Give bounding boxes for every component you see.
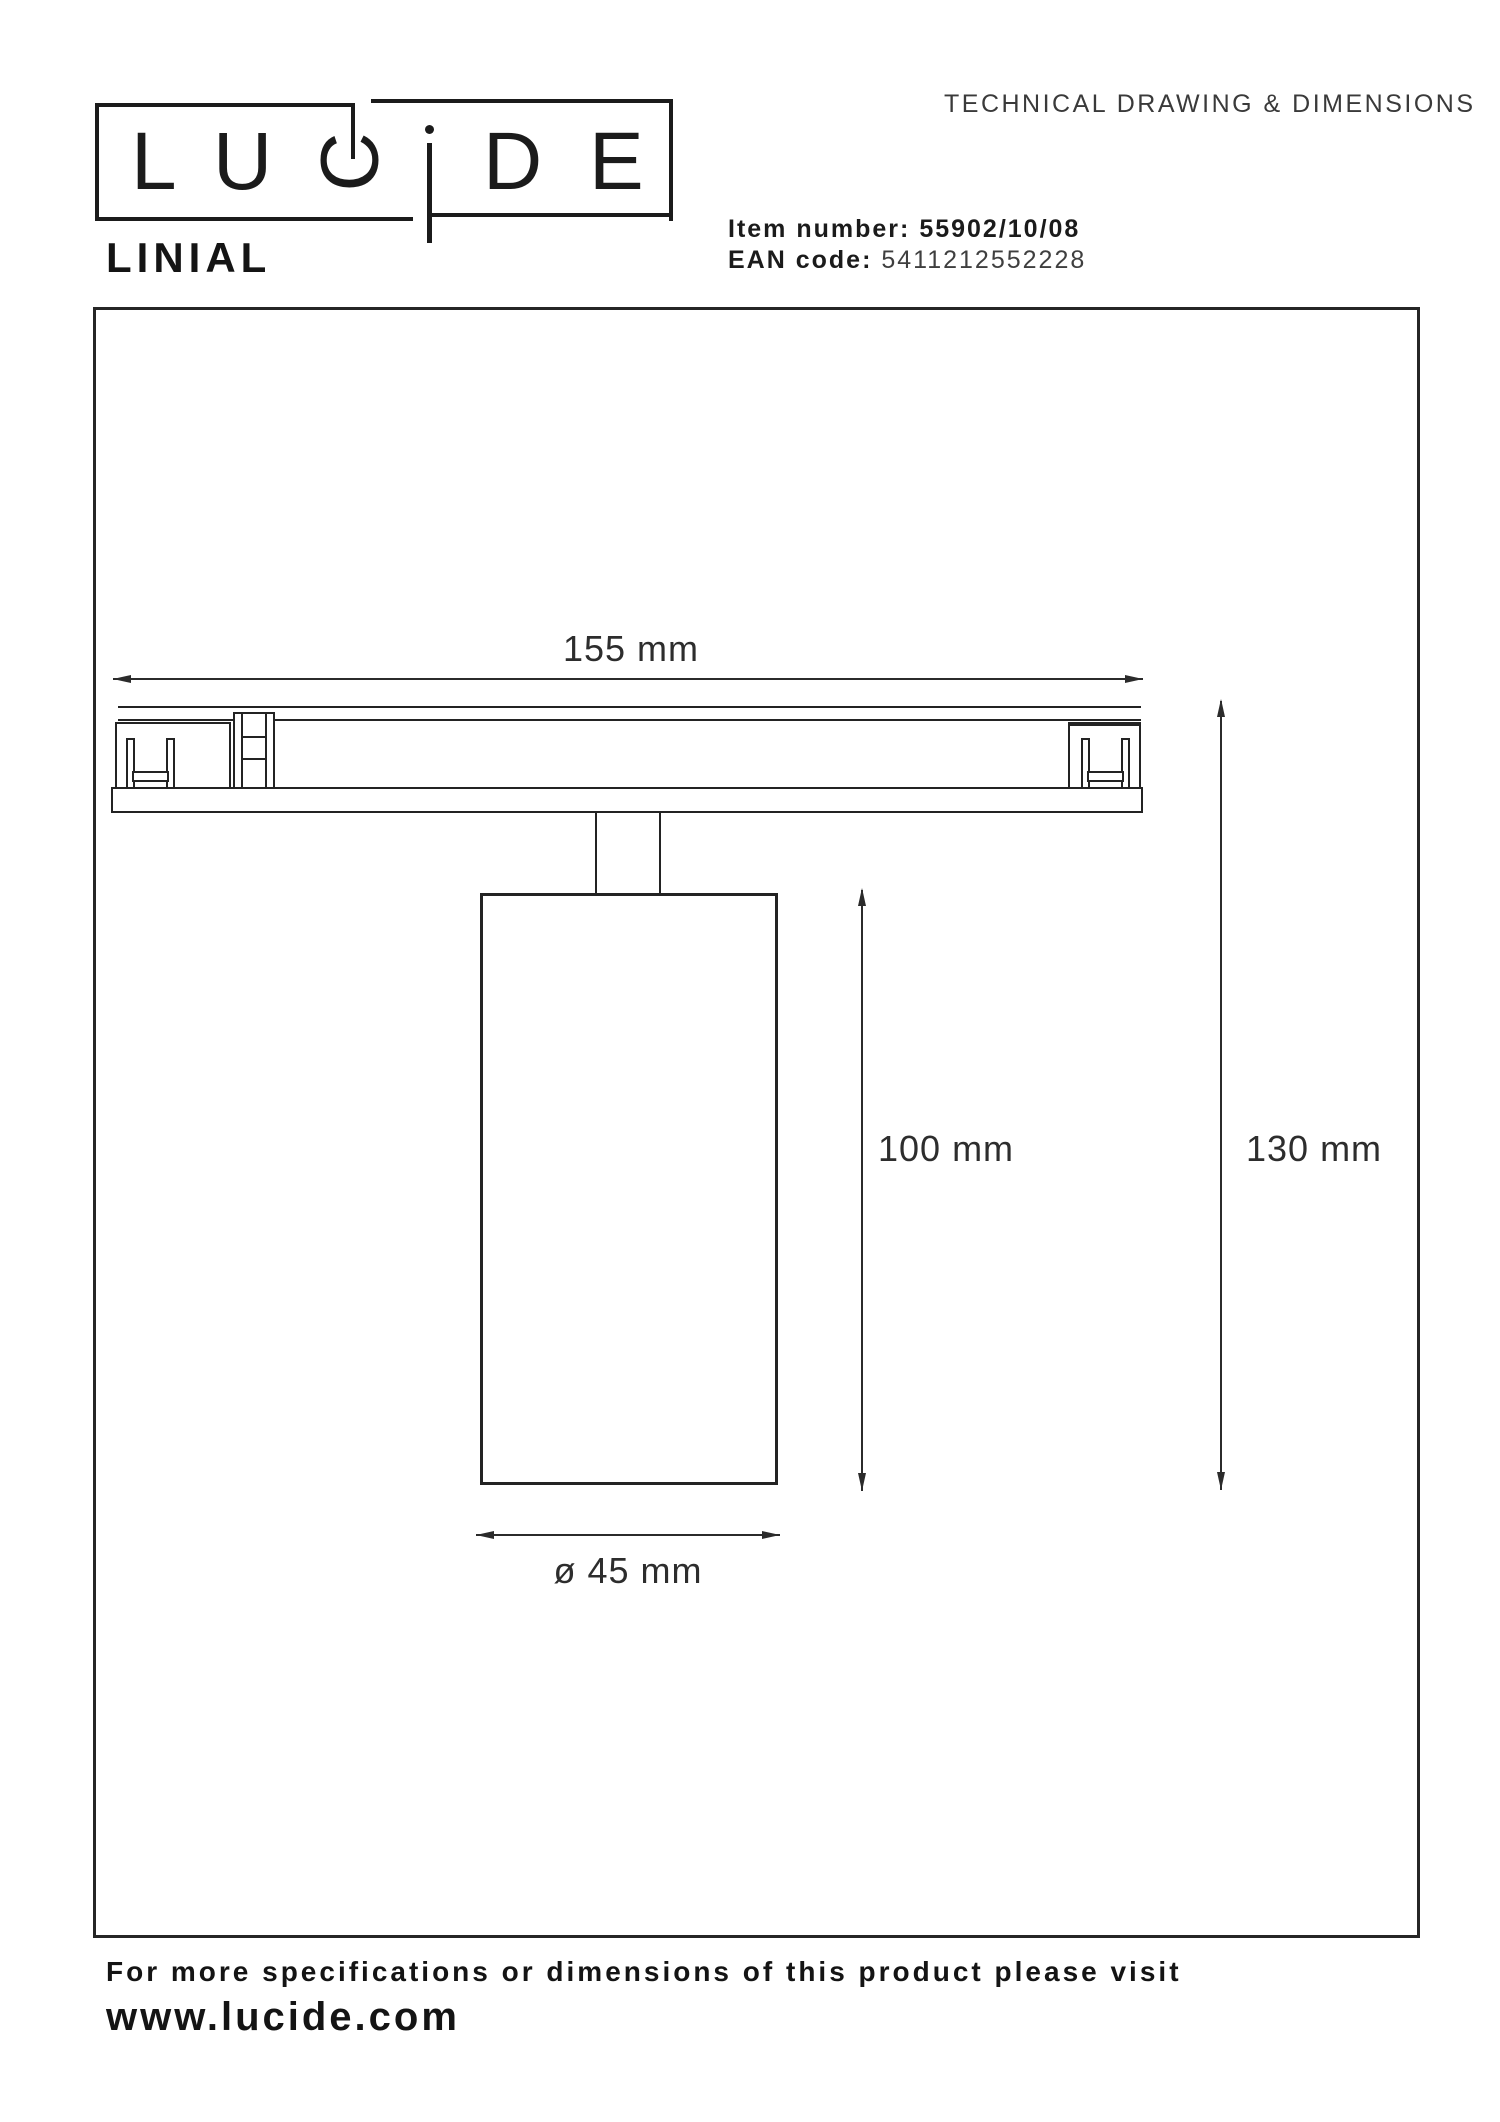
track-end-clip-right (1068, 722, 1141, 790)
logo-frame-bottom-left (95, 217, 413, 221)
item-number-label: Item number: (728, 215, 910, 243)
logo-letter: E (589, 109, 644, 215)
arrow-down-icon (1217, 1472, 1225, 1490)
track-end-clip-left (115, 722, 231, 790)
total-height-label: 130 mm (1246, 1128, 1382, 1170)
dim-line-track-width (113, 678, 1143, 680)
arrow-up-icon (858, 888, 866, 906)
arrow-right-icon (762, 1531, 780, 1539)
drawing-frame: 155 mm (93, 307, 1420, 1938)
spot-cylinder (480, 893, 778, 1485)
connector-divider (241, 736, 267, 738)
logo-frame-top-left (95, 103, 353, 107)
logo-frame-top-right (371, 99, 673, 103)
logo-letter-i-dot (425, 125, 434, 134)
connector-wall (241, 714, 243, 788)
diameter-label: ø 45 mm (476, 1550, 780, 1592)
track-width-label: 155 mm (481, 628, 781, 670)
ean-code-label: EAN code: (728, 246, 872, 274)
logo-letter-i-stem (427, 143, 432, 243)
dim-line-spot-height (861, 890, 863, 1491)
connector-wall (265, 714, 267, 788)
footer-website: www.lucide.com (106, 1995, 460, 2040)
document-title: TECHNICAL DRAWING & DIMENSIONS (944, 90, 1476, 119)
logo-letter: D (483, 109, 542, 215)
spot-stem (595, 811, 661, 896)
logo-frame-left (95, 103, 99, 221)
u-channel-left (126, 738, 175, 789)
arrow-down-icon (858, 1473, 866, 1491)
u-channel-base (132, 771, 169, 782)
dim-line-total-height (1220, 701, 1222, 1490)
spec-sheet-page: L U C D E TECHNICAL DRAWING & DIMENSIONS… (0, 0, 1500, 2122)
logo-letter: C (298, 132, 404, 191)
item-number-line: Item number: 55902/10/08 (728, 214, 1086, 245)
logo-frame-right (669, 99, 673, 221)
item-number-value: 55902/10/08 (919, 215, 1080, 243)
dim-line-diameter (476, 1534, 780, 1536)
connector-divider (241, 758, 267, 760)
product-codes: Item number: 55902/10/08 EAN code: 54112… (728, 214, 1086, 276)
logo-letter: L (131, 109, 177, 215)
lucide-logo: L U C D E (95, 103, 673, 221)
logo-letter: U (213, 109, 272, 215)
u-channel-right (1081, 738, 1130, 789)
track-base-plate (111, 787, 1143, 813)
footer-note: For more specifications or dimensions of… (106, 1956, 1182, 1988)
arrow-left-icon (113, 675, 131, 683)
arrow-up-icon (1217, 699, 1225, 717)
u-channel-base (1087, 771, 1124, 782)
arrow-right-icon (1125, 675, 1143, 683)
arrow-left-icon (476, 1531, 494, 1539)
product-name: LINIAL (106, 234, 271, 282)
ean-code-line: EAN code: 5411212552228 (728, 245, 1086, 276)
spot-height-label: 100 mm (878, 1128, 1014, 1170)
ean-code-value: 5411212552228 (881, 246, 1086, 274)
track-connector (233, 712, 275, 790)
